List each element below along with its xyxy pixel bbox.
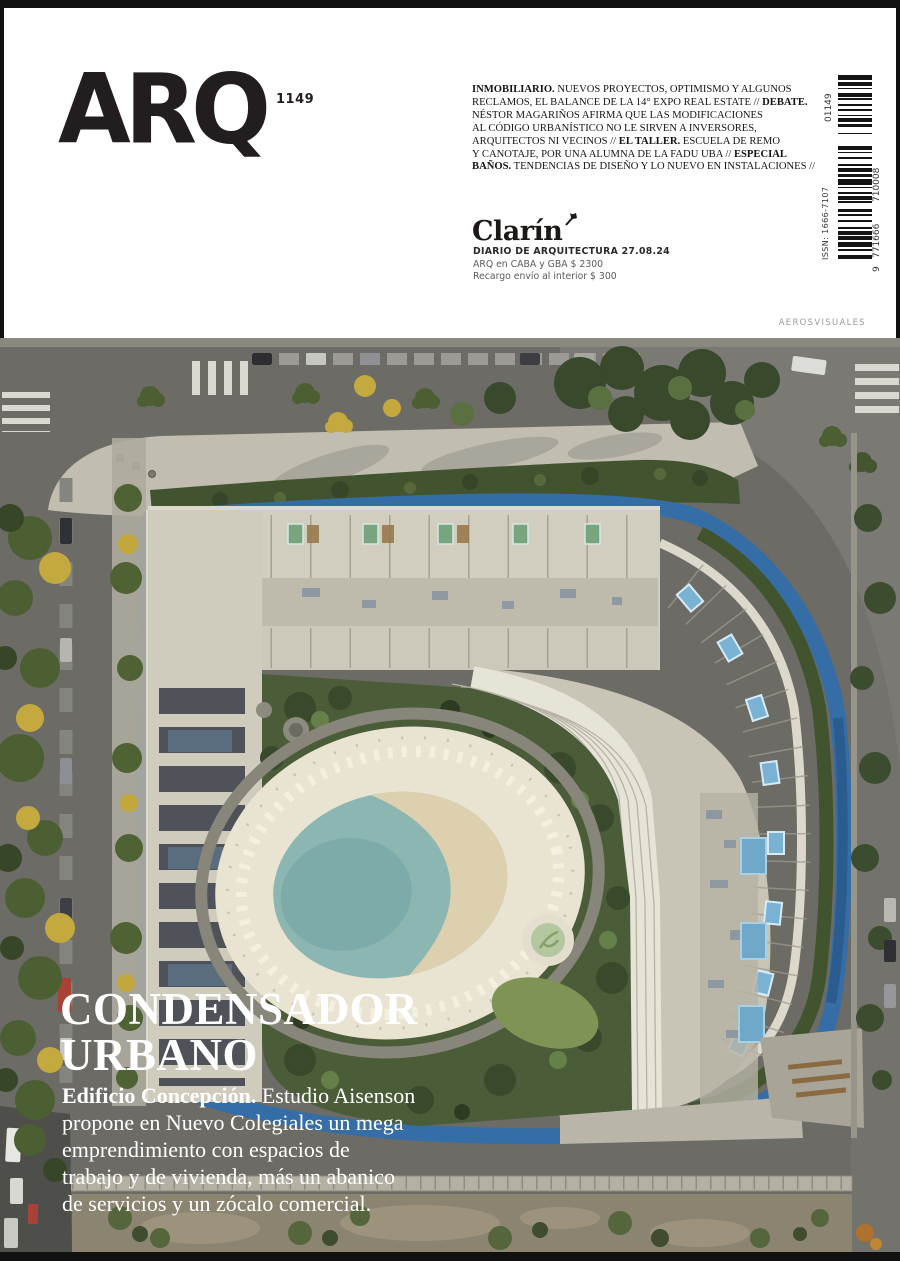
publication-line: DIARIO DE ARQUITECTURA 27.08.24 bbox=[473, 246, 670, 259]
teaser-block: INMOBILIARIO. NUEVOS PROYECTOS, OPTIMISM… bbox=[472, 84, 824, 174]
clarin-logo: Clarín bbox=[472, 216, 562, 247]
publication-info: DIARIO DE ARQUITECTURA 27.08.24 ARQ en C… bbox=[473, 246, 670, 284]
magazine-logo: ARQ bbox=[58, 63, 265, 159]
barcode-block: 01149 ISSN: 1666-7107 710008 771666 9 bbox=[820, 72, 882, 272]
frame-right bbox=[896, 8, 900, 338]
ean-group1: 771666 bbox=[872, 224, 882, 258]
frame-top bbox=[0, 0, 900, 8]
cover-photo: CONDENSADORURBANO Edificio Concepción. E… bbox=[0, 338, 900, 1252]
photo-credit: AEROSVISUALES bbox=[779, 318, 866, 328]
clarin-flag-icon bbox=[564, 212, 578, 231]
issue-number: 1149 bbox=[276, 92, 314, 107]
price-line: ARQ en CABA y GBA $ 2300 bbox=[473, 259, 670, 272]
frame-bottom bbox=[0, 1252, 900, 1261]
issn-number: ISSN: 1666-7107 bbox=[821, 187, 830, 260]
publisher-block: Clarín bbox=[472, 212, 578, 247]
barcode-addon-number: 01149 bbox=[824, 93, 834, 122]
surcharge-line: Recargo envío al interior $ 300 bbox=[473, 271, 670, 284]
cover-dek: Edificio Concepción. Estudio Aisensonpro… bbox=[62, 1082, 415, 1217]
frame-left bbox=[0, 8, 4, 338]
barcode-addon-bars bbox=[838, 75, 872, 134]
ean-group2: 710008 bbox=[872, 168, 882, 202]
barcode-main-bars bbox=[838, 146, 872, 260]
cover-headline: CONDENSADORURBANO bbox=[60, 986, 418, 1078]
ean-prefix: 9 bbox=[872, 266, 882, 272]
magazine-cover: ARQ 1149 INMOBILIARIO. NUEVOS PROYECTOS,… bbox=[0, 0, 900, 1261]
